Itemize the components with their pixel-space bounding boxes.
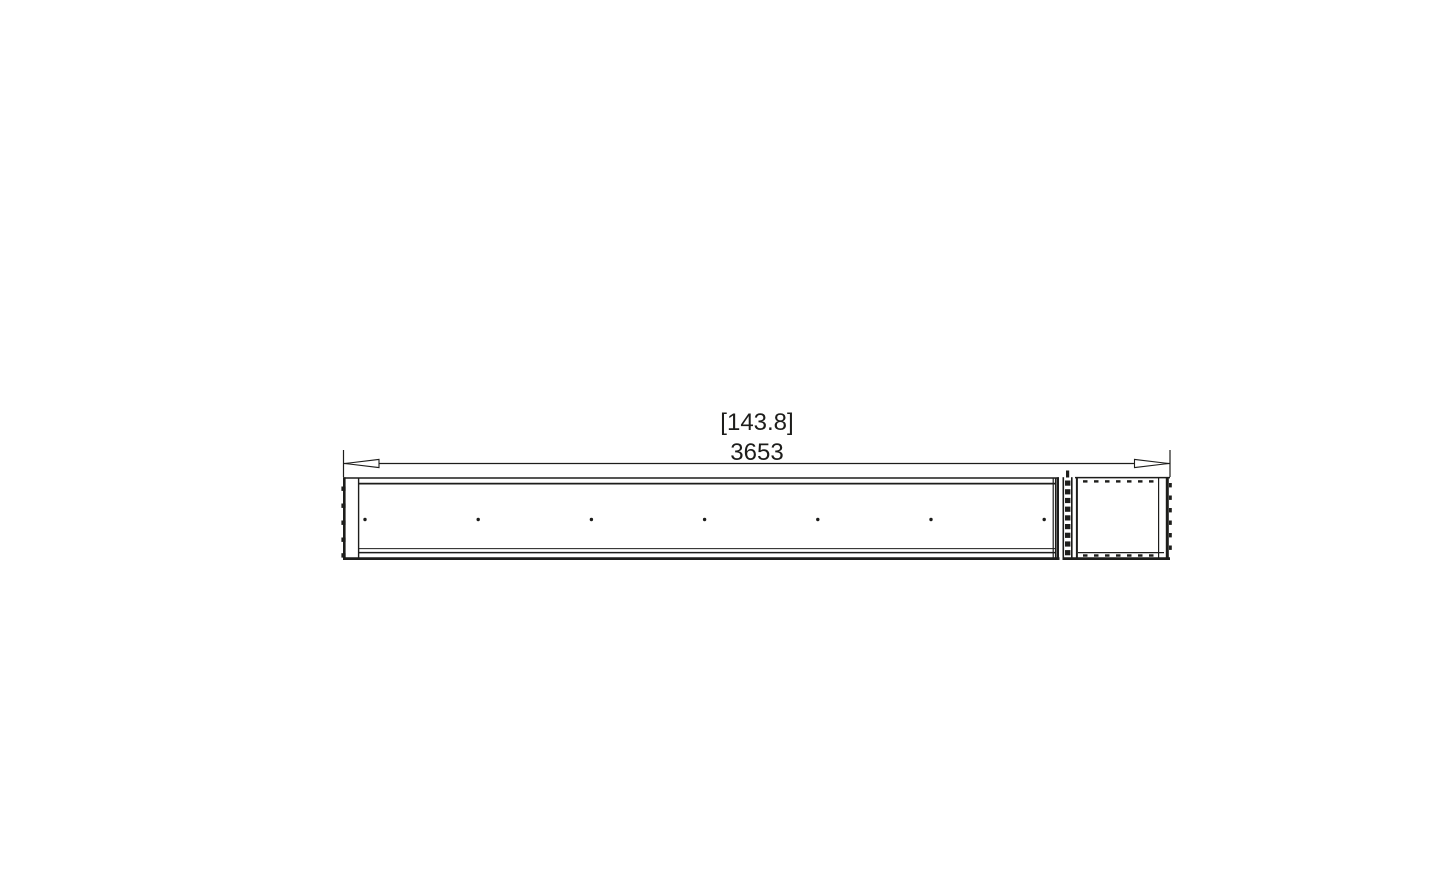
divider-dash — [1065, 498, 1070, 503]
top-edge-tick — [1138, 480, 1143, 482]
right-edge-tick — [1169, 533, 1172, 537]
burner-port-dot — [816, 518, 819, 521]
technical-drawing: [143.8] 3653 — [0, 0, 1445, 893]
top-edge-tick — [1105, 480, 1110, 482]
left-cap-tick — [341, 487, 345, 491]
arrowhead-right-icon — [1135, 459, 1169, 467]
top-edge-tick — [1083, 480, 1088, 482]
imperial-dimension-label: [143.8] — [720, 409, 793, 436]
left-cap-tick — [341, 553, 345, 557]
right-edge-tick — [1169, 521, 1172, 525]
bottom-edge-tick — [1149, 554, 1154, 556]
main-burner-body — [341, 477, 1059, 560]
top-edge-tick — [1094, 480, 1099, 482]
arrowhead-left-icon — [345, 459, 379, 467]
left-cap-tick — [341, 521, 345, 525]
bottom-edge-tick — [1127, 554, 1132, 556]
divider-top-tick — [1066, 471, 1069, 478]
burner-port-dot — [703, 518, 706, 521]
right-edge-tick — [1169, 508, 1172, 512]
drawing-canvas: [143.8] 3653 — [0, 0, 1445, 893]
right-edge-tick — [1169, 546, 1172, 550]
divider-dash — [1065, 489, 1070, 494]
divider-dash — [1065, 533, 1070, 538]
dimension-annotation: [143.8] 3653 — [344, 409, 1171, 477]
bottom-edge-tick — [1094, 554, 1099, 556]
bottom-edge-tick — [1083, 554, 1088, 556]
right-compartment — [1063, 477, 1172, 560]
right-edge-tick — [1169, 483, 1172, 487]
divider-dash — [1065, 541, 1070, 546]
top-edge-tick — [1127, 480, 1132, 482]
burner-port-dot — [590, 518, 593, 521]
burner-port-dot — [929, 518, 932, 521]
bottom-edge-tick — [1105, 554, 1110, 556]
bottom-edge-tick — [1116, 554, 1121, 556]
top-edge-tick — [1149, 480, 1154, 482]
burner-port-dot — [477, 518, 480, 521]
left-cap-tick — [341, 538, 345, 542]
divider-dash — [1065, 524, 1070, 529]
burner-port-dots — [363, 518, 1046, 521]
divider-dash — [1065, 550, 1070, 555]
divider-dash — [1065, 515, 1070, 520]
burner-port-dot — [363, 518, 366, 521]
left-cap-tick — [341, 504, 345, 508]
divider-dash — [1065, 507, 1070, 512]
burner-port-dot — [1043, 518, 1046, 521]
divider-vent-strip — [1063, 471, 1072, 560]
top-edge-tick — [1116, 480, 1121, 482]
divider-dash — [1065, 481, 1070, 486]
right-edge-tick — [1169, 496, 1172, 500]
metric-dimension-label: 3653 — [730, 439, 783, 466]
bottom-edge-tick — [1138, 554, 1143, 556]
